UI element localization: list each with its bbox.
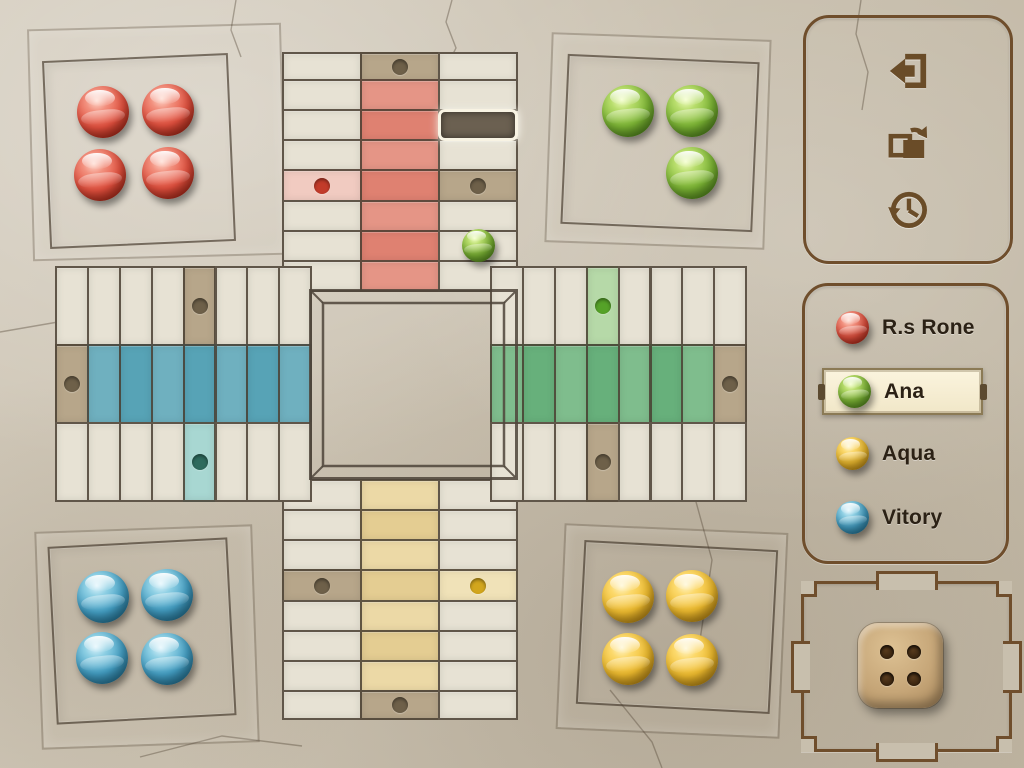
player-name: R.s Rone — [882, 316, 975, 340]
board-cell — [438, 200, 518, 232]
board-cell — [282, 109, 362, 141]
board-cell — [87, 266, 121, 346]
board-cell — [522, 266, 556, 346]
board-cell — [438, 569, 518, 601]
blue-player-token — [836, 501, 869, 534]
board-cell — [282, 539, 362, 571]
board-cell — [360, 200, 440, 232]
board-cell — [522, 344, 556, 424]
board-cell — [151, 422, 185, 502]
red-player-token — [836, 311, 869, 344]
board-cell — [438, 539, 518, 571]
board-cell — [360, 260, 440, 292]
board-cell — [282, 690, 362, 720]
red-pawn[interactable] — [77, 86, 129, 138]
board-cell — [282, 600, 362, 632]
blue-home-area — [47, 537, 236, 724]
board-cell — [282, 230, 362, 262]
rotate-screen-icon — [887, 120, 929, 160]
board-cell — [438, 139, 518, 171]
player-name: Ana — [884, 380, 924, 404]
rotate-screen-button[interactable] — [885, 118, 931, 162]
board-cell — [282, 200, 362, 232]
yellow-pawn[interactable] — [666, 634, 718, 686]
red-home-area — [42, 53, 236, 249]
history-button[interactable] — [885, 186, 931, 232]
board-cell — [282, 79, 362, 111]
board-cell — [151, 266, 185, 346]
board-cell — [119, 422, 153, 502]
yellow-home-area — [576, 540, 778, 714]
board-cell — [278, 422, 312, 502]
safe-cell-dot — [64, 376, 80, 392]
board-cell — [282, 630, 362, 662]
red-pawn[interactable] — [142, 147, 194, 199]
blue-pawn[interactable] — [77, 571, 129, 623]
green-pawn[interactable] — [602, 85, 654, 137]
blue-pawn[interactable] — [76, 632, 128, 684]
board-cell — [282, 509, 362, 541]
history-icon — [887, 188, 929, 230]
board-cell — [55, 344, 89, 424]
board-cell — [183, 266, 217, 346]
dice-panel-ornament — [996, 581, 1012, 597]
board-cell — [360, 109, 440, 141]
yellow-pawn[interactable] — [602, 571, 654, 623]
action-panel — [803, 15, 1013, 264]
dice-panel-ornament — [791, 641, 810, 693]
green-pawn[interactable] — [666, 85, 718, 137]
board-cell — [438, 509, 518, 541]
blue-pawn[interactable] — [141, 569, 193, 621]
board-cell — [586, 344, 620, 424]
dice-panel-ornament — [801, 736, 817, 752]
board-cell — [246, 422, 280, 502]
board-cell — [681, 266, 715, 346]
board-cell — [151, 344, 185, 424]
board-cell — [282, 52, 362, 82]
board-cell — [215, 266, 249, 346]
player-row-ana[interactable]: Ana — [822, 368, 983, 415]
board-cell — [438, 52, 518, 82]
safe-cell-dot — [314, 178, 330, 194]
green-pawn[interactable] — [462, 229, 495, 262]
board-cell — [360, 569, 440, 601]
board-cell — [554, 344, 588, 424]
board-cell — [246, 344, 280, 424]
board-cell — [438, 630, 518, 662]
board-cell — [522, 422, 556, 502]
die-pip — [880, 645, 894, 659]
board-cell — [586, 266, 620, 346]
yellow-pawn[interactable] — [602, 633, 654, 685]
board-cell — [650, 422, 684, 502]
board-cell — [438, 79, 518, 111]
safe-cell-dot — [470, 578, 486, 594]
board-cell — [681, 344, 715, 424]
board-cell — [618, 266, 652, 346]
highlighted-move-cell[interactable] — [438, 109, 518, 141]
board-cell — [87, 344, 121, 424]
board-cell — [360, 660, 440, 692]
board-cell — [215, 422, 249, 502]
safe-cell-dot — [595, 454, 611, 470]
safe-cell-dot — [392, 59, 408, 75]
board-cell — [360, 539, 440, 571]
board-cell — [119, 344, 153, 424]
player-row-vitory[interactable]: Vitory — [822, 494, 983, 541]
green-home-area — [560, 54, 759, 232]
board-cell — [119, 266, 153, 346]
board-cell — [438, 660, 518, 692]
board-cell — [282, 139, 362, 171]
board-cell — [360, 230, 440, 262]
safe-cell-dot — [470, 178, 486, 194]
blue-pawn[interactable] — [141, 633, 193, 685]
red-pawn[interactable] — [74, 149, 126, 201]
board-cell — [55, 266, 89, 346]
board-cell — [554, 422, 588, 502]
player-name: Vitory — [882, 506, 942, 530]
board-cell — [282, 569, 362, 601]
board-cell — [360, 169, 440, 201]
player-name: Aqua — [882, 442, 935, 466]
exit-button[interactable] — [883, 48, 933, 94]
board-cell — [278, 266, 312, 346]
dice-panel-ornament — [1003, 641, 1022, 693]
die-pip — [880, 672, 894, 686]
board-cell — [713, 344, 747, 424]
center-bevel-frame — [309, 289, 518, 480]
board-cell — [282, 169, 362, 201]
board-cell — [282, 660, 362, 692]
red-pawn[interactable] — [142, 84, 194, 136]
safe-cell-dot — [392, 697, 408, 713]
dice-panel-ornament — [876, 743, 938, 762]
die[interactable] — [858, 623, 943, 708]
dice-panel-ornament — [876, 571, 938, 590]
board-cell — [650, 266, 684, 346]
board-cell — [360, 630, 440, 662]
green-player-token — [838, 375, 871, 408]
board-cell — [55, 422, 89, 502]
dice-panel-ornament — [801, 581, 817, 597]
player-row-r-s-rone[interactable]: R.s Rone — [822, 304, 983, 351]
board-cell — [246, 266, 280, 346]
board-cell — [278, 344, 312, 424]
board-cell — [360, 509, 440, 541]
board-cell — [618, 422, 652, 502]
board-cell — [87, 422, 121, 502]
board-cell — [360, 139, 440, 171]
safe-cell-dot — [595, 298, 611, 314]
board-cell — [360, 690, 440, 720]
safe-cell-dot — [192, 454, 208, 470]
board-cell — [360, 79, 440, 111]
board-cell — [215, 344, 249, 424]
board-cell — [183, 422, 217, 502]
board-cell — [360, 479, 440, 511]
center-goal-square — [309, 289, 518, 480]
board-cell — [360, 52, 440, 82]
game-screen: R.s RoneAnaAquaVitory — [0, 0, 1024, 768]
safe-cell-dot — [192, 298, 208, 314]
board-cell — [650, 344, 684, 424]
board-cell — [360, 600, 440, 632]
green-pawn[interactable] — [666, 147, 718, 199]
board-cell — [183, 344, 217, 424]
board-cell — [438, 169, 518, 201]
yellow-player-token — [836, 437, 869, 470]
board-cell — [438, 600, 518, 632]
player-row-aqua[interactable]: Aqua — [822, 430, 983, 477]
board-cell — [438, 690, 518, 720]
board-cell — [713, 266, 747, 346]
board-cell — [681, 422, 715, 502]
exit-icon — [885, 50, 931, 92]
board-cell — [618, 344, 652, 424]
safe-cell-dot — [314, 578, 330, 594]
die-pip — [907, 672, 921, 686]
board-cell — [586, 422, 620, 502]
safe-cell-dot — [722, 376, 738, 392]
die-pip — [907, 645, 921, 659]
yellow-pawn[interactable] — [666, 570, 718, 622]
dice-panel-ornament — [996, 736, 1012, 752]
board-cell — [554, 266, 588, 346]
board-cell — [713, 422, 747, 502]
